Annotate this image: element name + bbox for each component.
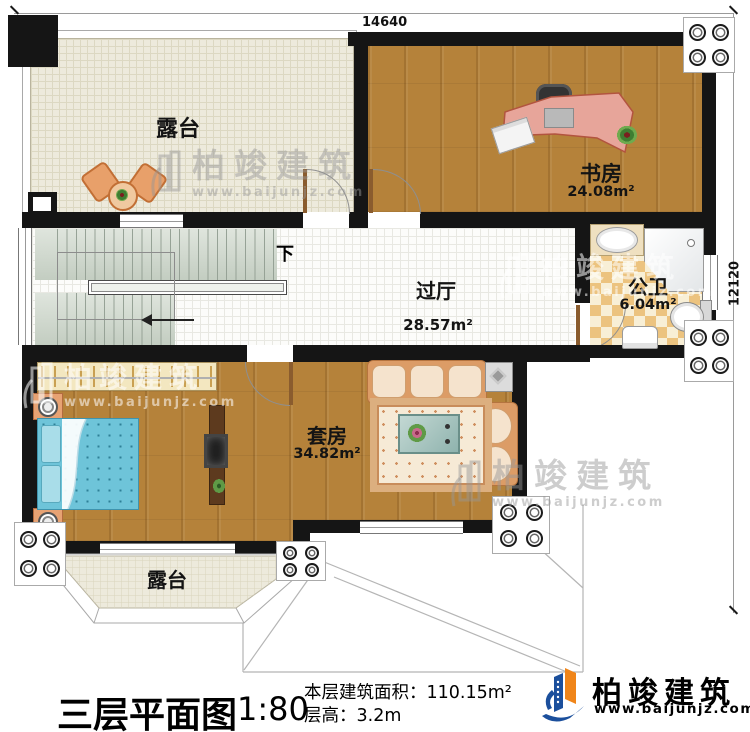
column-ring: [689, 49, 706, 66]
column-ring: [690, 357, 707, 374]
terrace-top-label: 露台: [156, 118, 200, 141]
terrace-table: [108, 181, 138, 211]
terrace-bottom-label: 露台: [147, 570, 187, 591]
column-ring: [20, 531, 37, 548]
side-table: [485, 362, 513, 392]
brand-url: www.baijunjz.com: [594, 701, 750, 717]
terrace-study-divider-wall: [354, 32, 368, 228]
floor-area-text: 本层建筑面积：110.15m²: [304, 679, 512, 704]
plan-scale: 1:80: [237, 690, 309, 728]
column-ring: [283, 563, 297, 577]
desk-plant: [614, 123, 640, 147]
floor-height-text: 层高：3.2m: [304, 702, 401, 727]
plan-title: 三层平面图: [55, 686, 241, 732]
nightstand: [33, 393, 63, 420]
study-bottom-wall: [368, 212, 716, 228]
column-ring: [500, 530, 517, 547]
column-cluster: [276, 541, 326, 581]
column-ring: [20, 560, 37, 577]
column-ring: [712, 329, 729, 346]
blanket-fold: [38, 419, 138, 509]
study-label: 书房 24.08m²: [567, 163, 634, 200]
hall-area: 28.57m²: [403, 318, 473, 334]
suite-door-opening: [247, 345, 293, 362]
hall-terrace-window: [120, 214, 183, 228]
coffee-table: [398, 414, 460, 454]
suite-top-wall: [22, 345, 590, 362]
bathroom-label: 公卫 6.04m²: [619, 277, 676, 313]
column-ring: [690, 329, 707, 346]
suite-label: 套房 34.82m²: [293, 426, 360, 462]
stairs-down-label: 下: [276, 240, 294, 266]
stairwell-window: [18, 228, 32, 345]
study-area: 24.08m²: [567, 185, 634, 200]
study-top-wall: [348, 32, 716, 46]
suite-south-window: [360, 521, 463, 534]
stairs-outline: [57, 252, 175, 320]
mop-basin: [622, 326, 658, 349]
corner-column: [8, 15, 58, 67]
column-inset: [33, 197, 51, 211]
column-ring: [500, 504, 517, 521]
bathroom-counter: [590, 224, 644, 256]
shower-drain: [687, 239, 695, 247]
hall-name: 过厅: [416, 279, 456, 303]
column-ring: [689, 24, 706, 41]
tv: [204, 434, 228, 468]
column-ring: [712, 49, 729, 66]
bathroom-area: 6.04m²: [619, 298, 676, 313]
lamp: [38, 397, 58, 417]
column-ring: [283, 546, 297, 560]
column-ring: [712, 357, 729, 374]
small-plant: [212, 478, 226, 494]
column-ring: [305, 546, 319, 560]
study-name: 书房: [580, 162, 622, 186]
sink: [596, 227, 638, 253]
column-cluster: [14, 522, 66, 586]
column-ring: [526, 530, 543, 547]
study-door-opening: [368, 212, 420, 228]
sofa-cushion: [372, 365, 406, 398]
column-cluster: [492, 496, 550, 554]
stairs-direction-arrow: [141, 314, 152, 326]
hall-label: 过厅: [416, 281, 456, 302]
column-ring: [43, 560, 60, 577]
terrace-door-opening: [303, 212, 349, 228]
column-cluster: [683, 17, 735, 73]
sofa-cushion: [410, 365, 444, 398]
wardrobe: [37, 362, 217, 391]
suite-name: 套房: [307, 424, 347, 448]
brand-logo-icon: [538, 664, 588, 726]
bathroom-name: 公卫: [628, 275, 668, 299]
floor-plan: 14640 12120 露台 书房 24.08m²: [0, 0, 750, 732]
wardrobe-rail: [38, 377, 216, 379]
keyboard-tray: [544, 108, 574, 128]
column-ring: [526, 504, 543, 521]
stairs-direction-line: [150, 319, 194, 321]
column-ring: [712, 24, 729, 41]
column-ring: [305, 563, 319, 577]
table-cup: [445, 424, 450, 429]
column-ring: [43, 531, 60, 548]
suite-area: 34.82m²: [293, 447, 360, 462]
sofa-cushion: [448, 365, 482, 398]
suite-floor-extension: [37, 520, 293, 541]
bed: [37, 418, 139, 510]
side-table-lamp: [490, 368, 507, 385]
table-cup: [445, 439, 450, 444]
table-flowers: [406, 422, 428, 444]
potted-plant: [116, 189, 128, 201]
column-cluster: [684, 320, 734, 382]
